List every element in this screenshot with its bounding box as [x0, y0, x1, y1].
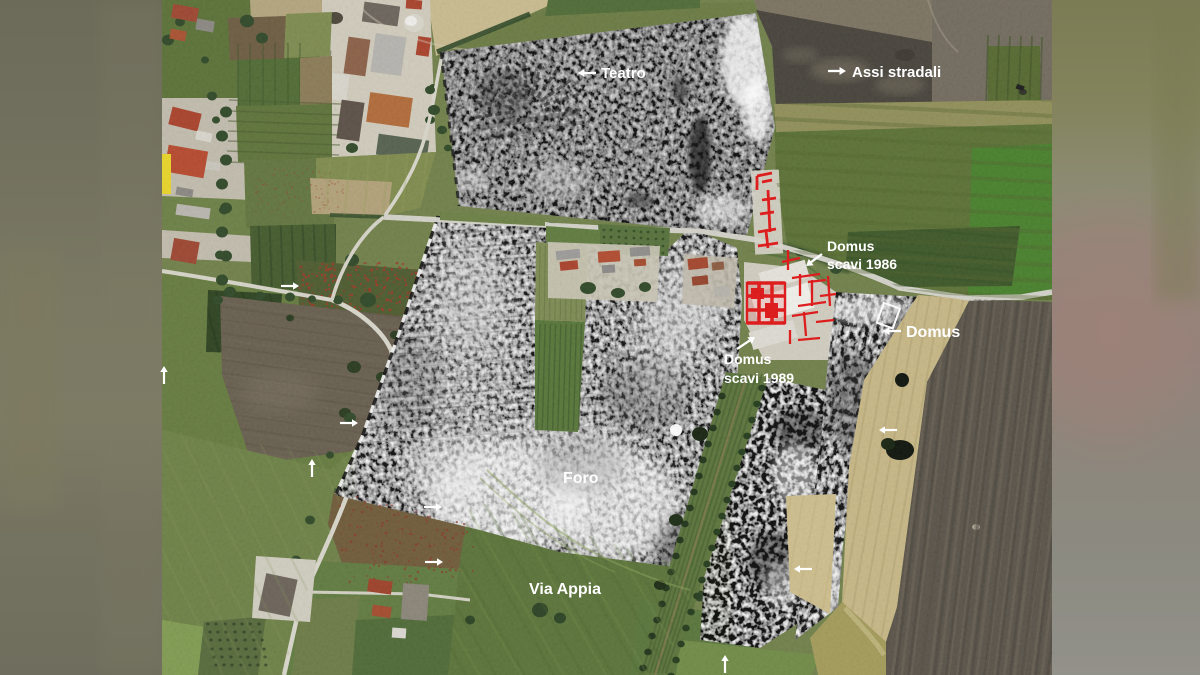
- svg-text:Via Appia: Via Appia: [529, 581, 601, 598]
- svg-text:Assi stradali: Assi stradali: [852, 64, 941, 81]
- svg-text:Domus: Domus: [724, 351, 772, 367]
- svg-text:Foro: Foro: [563, 470, 599, 487]
- svg-text:Domus: Domus: [906, 324, 960, 341]
- svg-text:Teatro: Teatro: [601, 65, 646, 82]
- svg-text:scavi 1989: scavi 1989: [724, 370, 794, 386]
- svg-text:Domus: Domus: [827, 238, 875, 254]
- svg-text:scavi 1986: scavi 1986: [827, 256, 897, 272]
